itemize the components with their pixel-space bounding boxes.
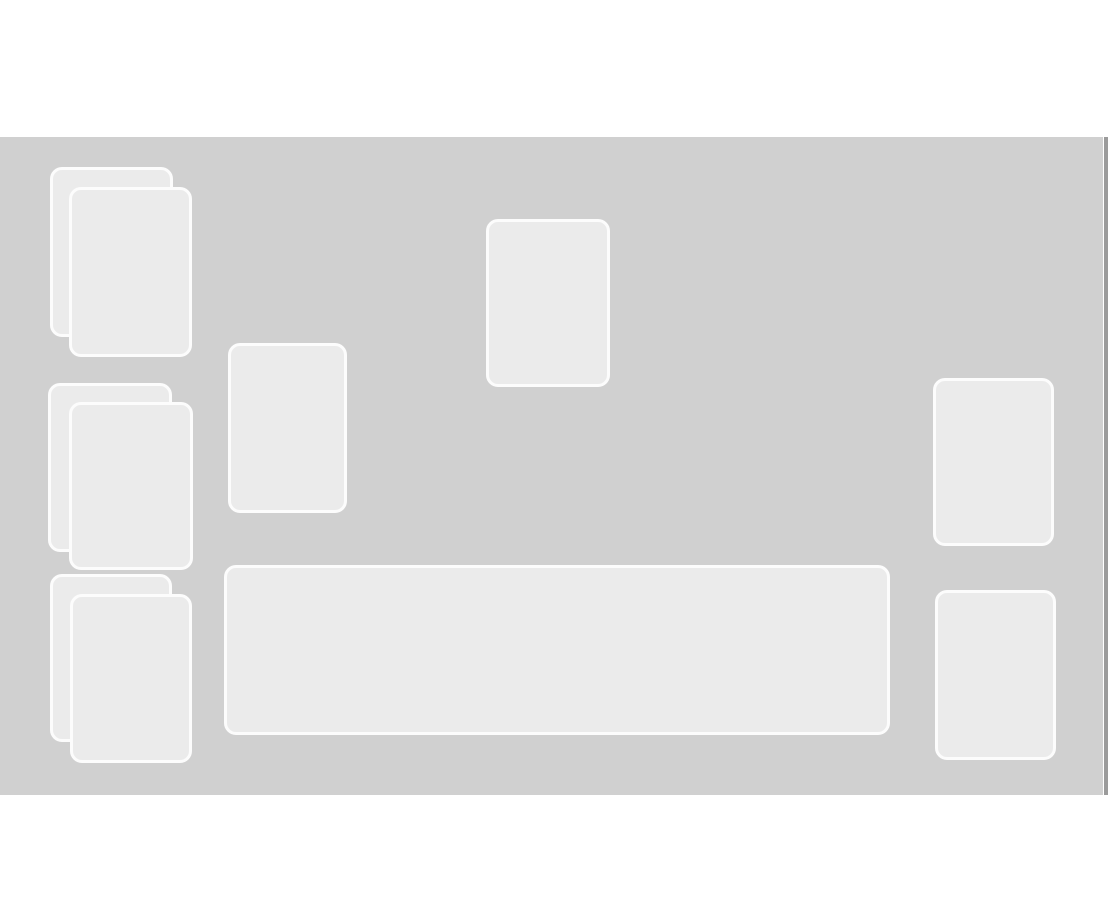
left-middle-stack-front-card[interactable]	[69, 402, 193, 570]
left-bottom-stack-front-card[interactable]	[70, 594, 192, 763]
right-bottom-card-slot[interactable]	[935, 590, 1056, 760]
play-row-zone[interactable]	[224, 565, 890, 735]
game-page	[0, 0, 1108, 919]
right-top-card-slot[interactable]	[933, 378, 1054, 546]
second-column-card-slot[interactable]	[228, 343, 347, 513]
center-top-card-slot[interactable]	[486, 219, 610, 387]
right-scrollbar[interactable]	[1104, 137, 1108, 795]
left-top-stack-front-card[interactable]	[69, 187, 192, 357]
